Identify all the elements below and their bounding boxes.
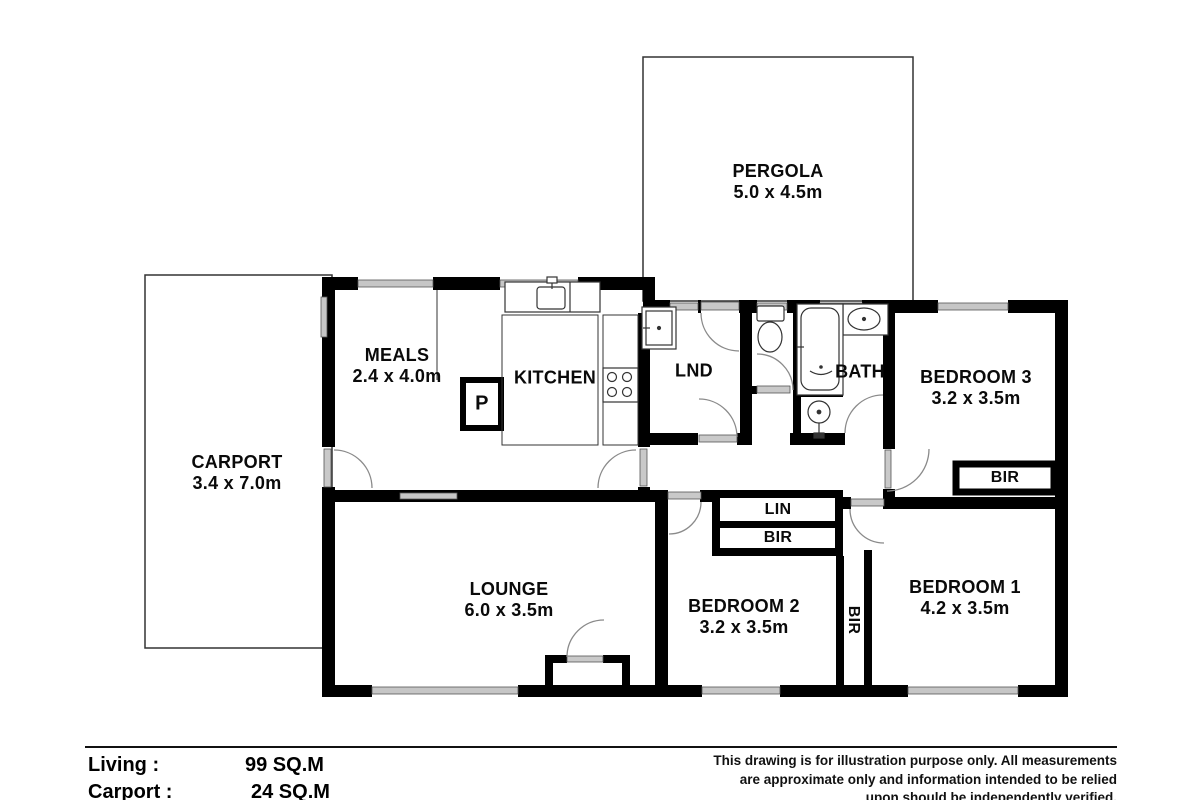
vanity-basin (843, 304, 888, 335)
room-dims: 3.2 x 3.5m (920, 388, 1032, 409)
carport-area-value: 24 SQ.M (251, 781, 330, 800)
room-dims: 3.4 x 7.0m (191, 473, 282, 494)
disclaimer-line: upon should be independently verified. (713, 789, 1117, 800)
room-name: BEDROOM 3 (920, 367, 1032, 388)
footer-divider (85, 746, 1117, 748)
room-label-laundry: LND (675, 361, 713, 382)
label-linen: LIN (765, 501, 792, 519)
label-robe-bedroom1: BIR (844, 606, 862, 634)
room-dims: 2.4 x 4.0m (352, 366, 441, 387)
laundry-trough (642, 307, 676, 349)
room-label-bath: BATH (835, 362, 885, 383)
room-label-pergola: PERGOLA 5.0 x 4.5m (732, 161, 823, 203)
label-robe-hall: BIR (764, 529, 792, 547)
disclaimer-text: This drawing is for illustration purpose… (713, 752, 1117, 800)
room-name: PERGOLA (732, 161, 823, 182)
room-dims: 6.0 x 3.5m (464, 600, 553, 621)
toilet (757, 306, 784, 352)
label-robe-bedroom3: BIR (991, 469, 1019, 487)
room-label-bedroom2: BEDROOM 2 3.2 x 3.5m (688, 596, 800, 638)
room-label-meals: MEALS 2.4 x 4.0m (352, 345, 441, 387)
carport-area-label: Carport : (88, 781, 172, 800)
room-dims: 4.2 x 3.5m (909, 598, 1021, 619)
shower-rose (808, 401, 830, 438)
room-label-pantry: P (475, 394, 489, 415)
room-label-lounge: LOUNGE 6.0 x 3.5m (464, 579, 553, 621)
room-label-carport: CARPORT 3.4 x 7.0m (191, 452, 282, 494)
room-name: LOUNGE (464, 579, 553, 600)
room-dims: 3.2 x 3.5m (688, 617, 800, 638)
room-dims: 5.0 x 4.5m (732, 182, 823, 203)
disclaimer-line: This drawing is for illustration purpose… (713, 752, 1117, 771)
living-area-label: Living : (88, 754, 159, 777)
cooktop (603, 368, 638, 402)
disclaimer-line: are approximate only and information int… (713, 771, 1117, 790)
living-area-value: 99 SQ.M (245, 754, 324, 777)
floorplan-page: PERGOLA 5.0 x 4.5m CARPORT 3.4 x 7.0m ME… (0, 0, 1200, 800)
room-name: BEDROOM 2 (688, 596, 800, 617)
room-label-bedroom1: BEDROOM 1 4.2 x 3.5m (909, 577, 1021, 619)
room-name: BEDROOM 1 (909, 577, 1021, 598)
room-label-bedroom3: BEDROOM 3 3.2 x 3.5m (920, 367, 1032, 409)
room-label-kitchen: KITCHEN (514, 368, 596, 389)
room-name: CARPORT (191, 452, 282, 473)
room-name: MEALS (352, 345, 441, 366)
kitchen-sink (505, 277, 600, 312)
